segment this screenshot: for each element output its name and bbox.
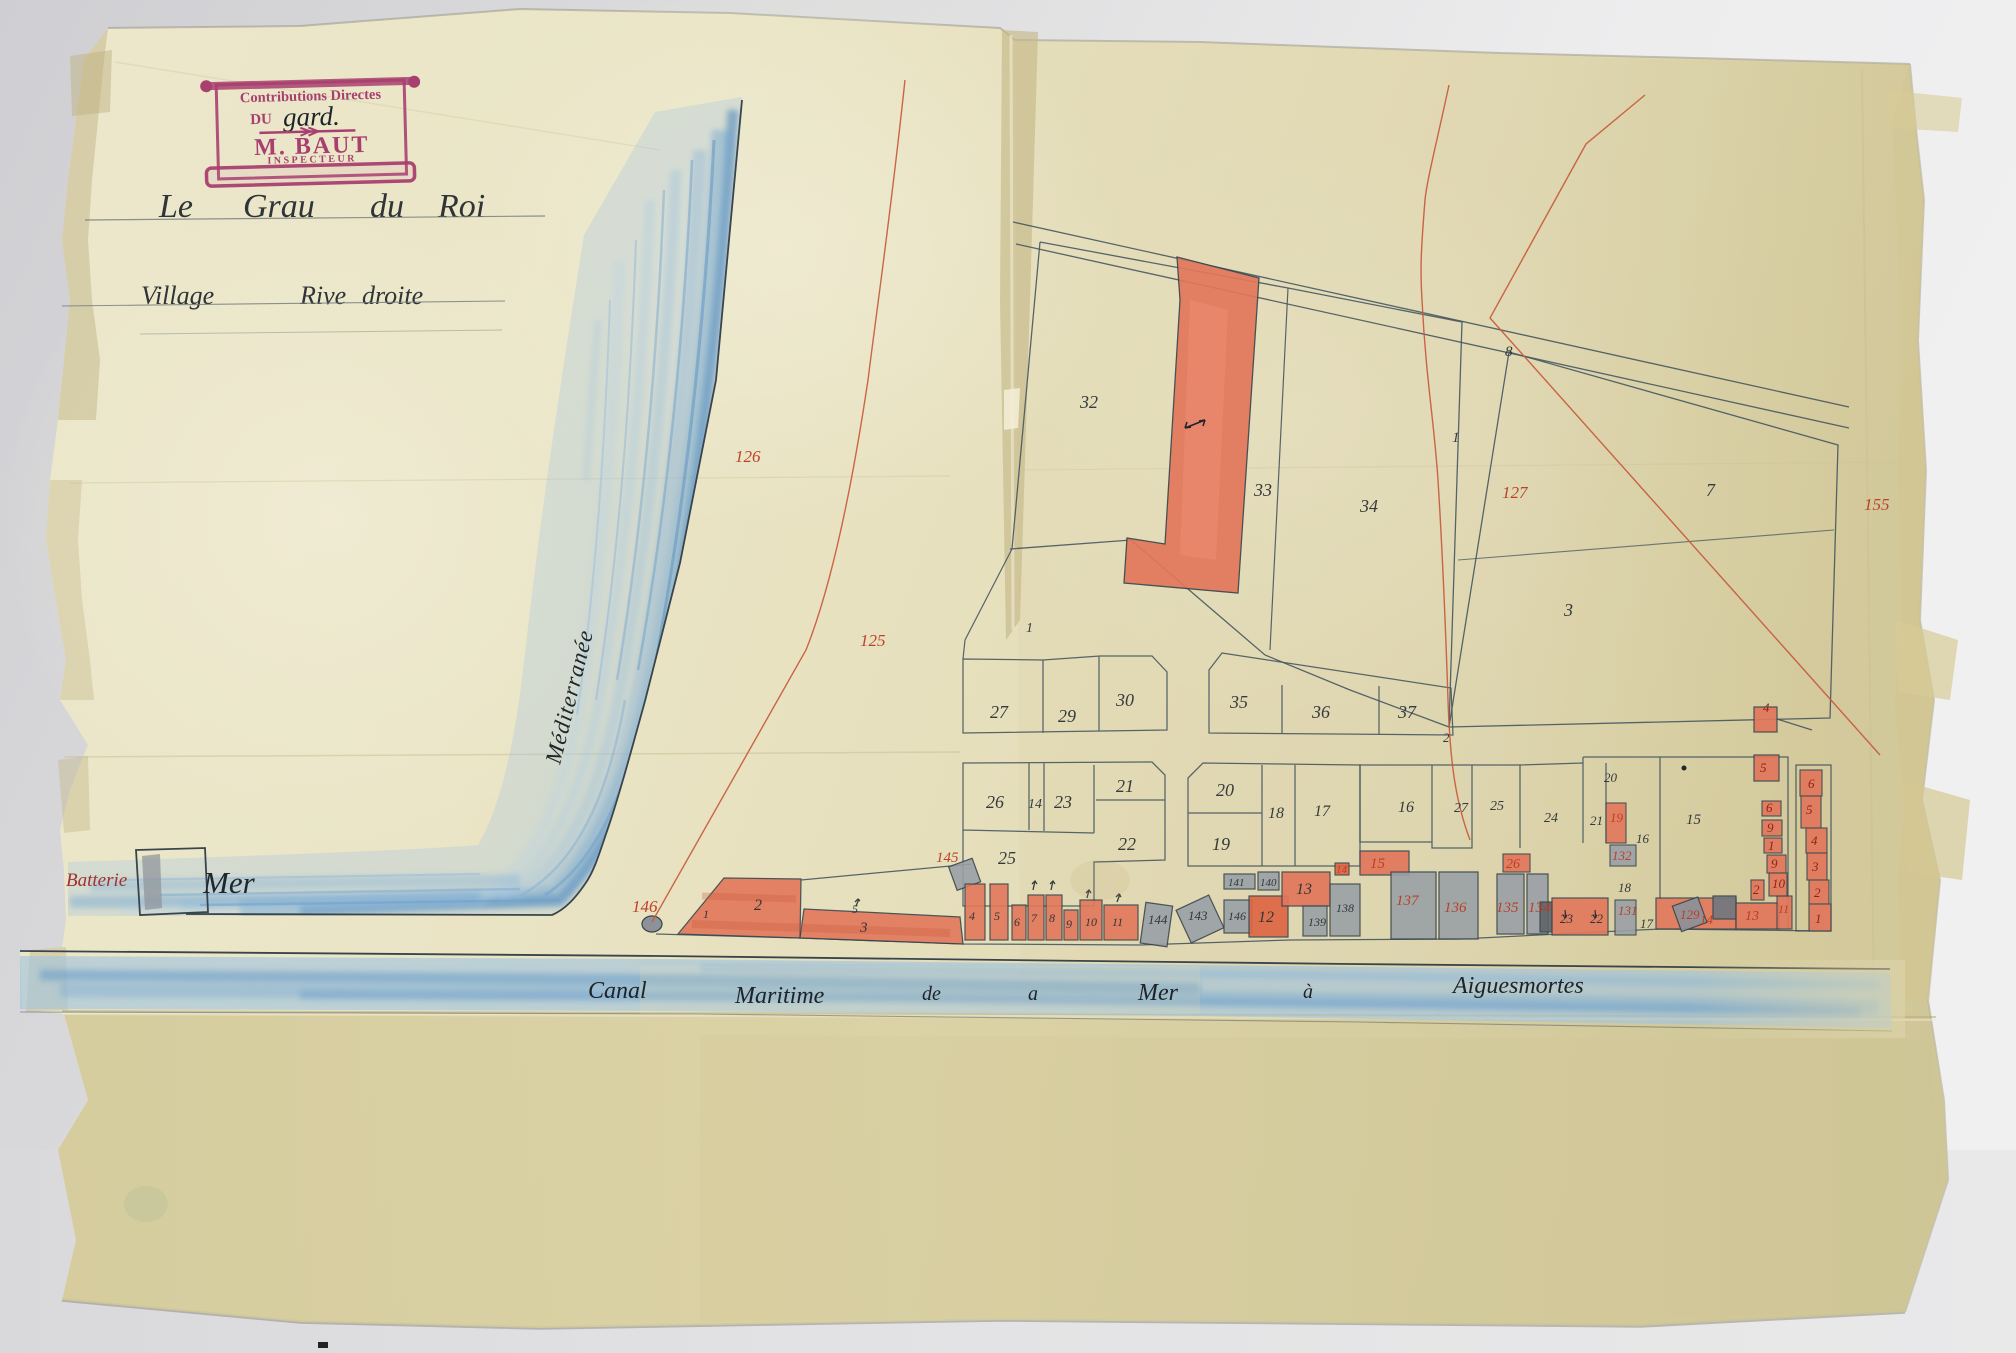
svg-text:7: 7 bbox=[1031, 911, 1038, 925]
svg-text:10: 10 bbox=[1085, 915, 1097, 929]
svg-text:6: 6 bbox=[1766, 800, 1773, 815]
svg-text:25: 25 bbox=[1490, 799, 1504, 814]
svg-text:30: 30 bbox=[1115, 690, 1134, 710]
svg-text:125: 125 bbox=[860, 631, 886, 650]
svg-text:132: 132 bbox=[1612, 848, 1632, 863]
svg-text:6: 6 bbox=[1014, 915, 1020, 929]
svg-text:2: 2 bbox=[754, 897, 762, 914]
svg-text:17: 17 bbox=[1314, 803, 1331, 820]
svg-text:Mer: Mer bbox=[202, 865, 256, 900]
svg-text:4: 4 bbox=[969, 909, 975, 923]
svg-text:146: 146 bbox=[632, 897, 658, 916]
svg-text:26: 26 bbox=[986, 792, 1004, 812]
svg-text:29: 29 bbox=[1058, 706, 1076, 726]
svg-text:5: 5 bbox=[852, 902, 858, 916]
svg-text:2: 2 bbox=[1814, 885, 1821, 900]
svg-text:Aiguesmortes: Aiguesmortes bbox=[1451, 973, 1584, 999]
svg-text:24: 24 bbox=[1544, 811, 1558, 826]
svg-text:8: 8 bbox=[1049, 911, 1055, 925]
svg-text:Maritime: Maritime bbox=[734, 983, 825, 1009]
svg-text:8: 8 bbox=[1505, 344, 1513, 360]
svg-text:20: 20 bbox=[1604, 770, 1618, 785]
svg-text:Canal: Canal bbox=[588, 978, 647, 1004]
svg-text:145: 145 bbox=[936, 850, 959, 866]
svg-text:141: 141 bbox=[1228, 877, 1245, 889]
svg-text:131: 131 bbox=[1618, 903, 1638, 918]
svg-text:gard.: gard. bbox=[283, 101, 341, 132]
svg-text:20: 20 bbox=[1216, 780, 1234, 800]
svg-text:34: 34 bbox=[1359, 496, 1378, 516]
svg-text:11: 11 bbox=[1112, 915, 1123, 929]
svg-text:14: 14 bbox=[1336, 864, 1348, 876]
svg-text:16: 16 bbox=[1636, 831, 1650, 846]
svg-text:33: 33 bbox=[1253, 480, 1272, 500]
svg-text:INSPECTEUR: INSPECTEUR bbox=[267, 153, 357, 166]
svg-text:à: à bbox=[1303, 981, 1313, 1003]
svg-text:143: 143 bbox=[1188, 908, 1208, 923]
svg-text:126: 126 bbox=[735, 447, 761, 466]
svg-text:139: 139 bbox=[1308, 915, 1326, 929]
svg-text:1: 1 bbox=[1815, 911, 1822, 926]
svg-text:16: 16 bbox=[1398, 799, 1414, 816]
svg-text:12: 12 bbox=[1258, 909, 1274, 926]
svg-text:1: 1 bbox=[1026, 621, 1033, 636]
svg-text:10: 10 bbox=[1772, 876, 1786, 891]
svg-text:22: 22 bbox=[1590, 911, 1604, 926]
svg-text:21: 21 bbox=[1590, 813, 1603, 828]
svg-text:1: 1 bbox=[1768, 838, 1775, 853]
svg-text:155: 155 bbox=[1864, 495, 1890, 514]
svg-text:11: 11 bbox=[1778, 902, 1789, 916]
svg-text:15: 15 bbox=[1370, 856, 1386, 872]
svg-text:134: 134 bbox=[1528, 900, 1551, 916]
svg-text:127: 127 bbox=[1502, 483, 1529, 502]
svg-text:14: 14 bbox=[1028, 797, 1042, 812]
svg-text:9: 9 bbox=[1771, 856, 1778, 871]
svg-text:21: 21 bbox=[1116, 776, 1134, 796]
svg-text:19: 19 bbox=[1610, 810, 1624, 825]
svg-text:Mer: Mer bbox=[1137, 980, 1179, 1006]
svg-text:2: 2 bbox=[1753, 882, 1760, 897]
svg-text:5: 5 bbox=[1806, 802, 1813, 817]
svg-text:36: 36 bbox=[1311, 702, 1330, 722]
svg-text:4: 4 bbox=[1811, 833, 1818, 848]
svg-text:13: 13 bbox=[1296, 881, 1312, 898]
svg-text:140: 140 bbox=[1260, 877, 1277, 889]
svg-text:135: 135 bbox=[1496, 900, 1519, 916]
svg-text:3: 3 bbox=[859, 920, 868, 936]
svg-text:14: 14 bbox=[1700, 912, 1714, 927]
svg-text:4: 4 bbox=[1763, 700, 1770, 715]
svg-text:5: 5 bbox=[994, 909, 1000, 923]
svg-text:de: de bbox=[922, 983, 941, 1005]
svg-text:13: 13 bbox=[1745, 909, 1759, 924]
svg-text:a: a bbox=[1028, 983, 1038, 1005]
svg-text:23: 23 bbox=[1560, 911, 1574, 926]
svg-text:DU: DU bbox=[250, 111, 272, 128]
svg-text:23: 23 bbox=[1054, 792, 1072, 812]
svg-text:1: 1 bbox=[703, 907, 709, 921]
svg-text:3: 3 bbox=[1811, 859, 1819, 874]
svg-text:22: 22 bbox=[1118, 834, 1136, 854]
svg-text:3: 3 bbox=[1563, 600, 1573, 620]
svg-text:129: 129 bbox=[1680, 907, 1700, 922]
svg-text:6: 6 bbox=[1808, 776, 1815, 791]
svg-text:9: 9 bbox=[1066, 917, 1072, 931]
svg-text:26: 26 bbox=[1506, 857, 1520, 872]
svg-text:136: 136 bbox=[1444, 900, 1467, 916]
svg-text:27: 27 bbox=[1454, 801, 1469, 816]
svg-text:32: 32 bbox=[1079, 392, 1098, 412]
svg-text:Batterie: Batterie bbox=[66, 870, 127, 891]
svg-text:9: 9 bbox=[1767, 820, 1774, 835]
svg-text:5: 5 bbox=[1760, 760, 1767, 775]
svg-text:35: 35 bbox=[1229, 692, 1248, 712]
svg-text:19: 19 bbox=[1212, 834, 1230, 854]
svg-text:25: 25 bbox=[998, 848, 1016, 868]
svg-text:2: 2 bbox=[1443, 730, 1450, 745]
svg-text:15: 15 bbox=[1686, 812, 1702, 828]
svg-text:146: 146 bbox=[1228, 909, 1246, 923]
svg-text:144: 144 bbox=[1148, 912, 1168, 927]
svg-text:1: 1 bbox=[1452, 430, 1460, 446]
svg-text:27: 27 bbox=[990, 702, 1009, 722]
svg-text:18: 18 bbox=[1618, 880, 1632, 895]
svg-text:18: 18 bbox=[1268, 805, 1284, 822]
svg-text:37: 37 bbox=[1397, 702, 1417, 722]
svg-text:17: 17 bbox=[1640, 916, 1654, 931]
svg-text:137: 137 bbox=[1396, 893, 1420, 909]
svg-text:7: 7 bbox=[1706, 480, 1716, 500]
svg-text:138: 138 bbox=[1336, 901, 1354, 915]
